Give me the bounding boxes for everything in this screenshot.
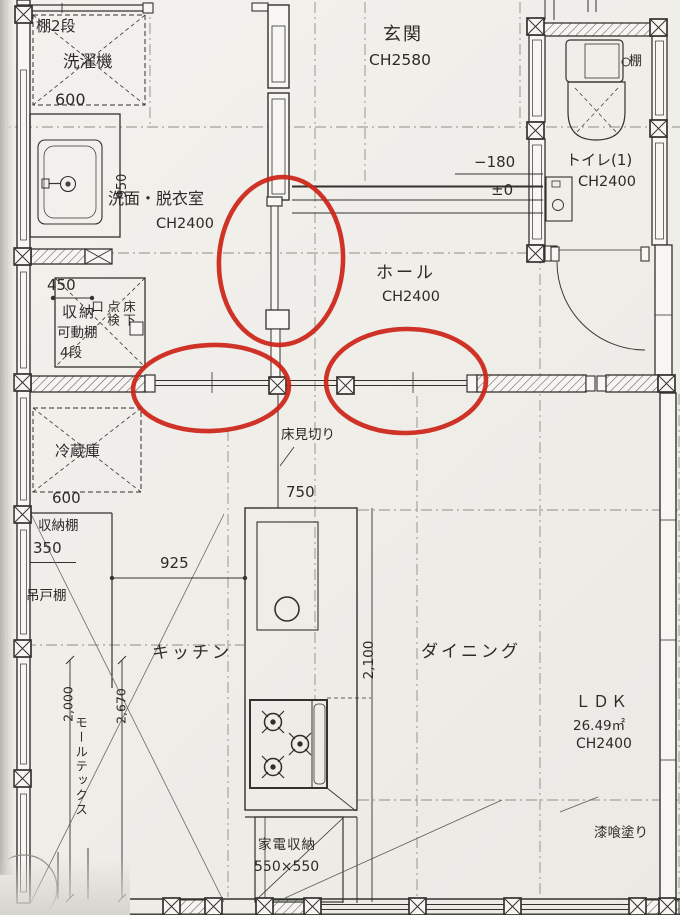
page-edge-shadow: [0, 0, 15, 875]
toilet-ceiling-height: CH2400: [578, 175, 636, 190]
dim-closet-depth: 450: [47, 278, 76, 294]
floor-divider-label: 床見切り: [281, 428, 335, 442]
toilet-shelf-label: 棚: [629, 55, 642, 69]
dim-vanity-depth: 950: [116, 174, 130, 199]
dim-fridge-width: 600: [52, 491, 81, 507]
floorplan-drawing: [0, 0, 680, 915]
dim-shelf-depth: 350: [33, 541, 62, 557]
page-curl-shadow: [0, 858, 130, 915]
entrance-level-label: −180: [474, 155, 515, 171]
appliance-storage-size: 550×550: [254, 860, 319, 875]
ldk-ceiling-height: CH2400: [576, 737, 632, 752]
shelf-two-tier-label: 棚2段: [36, 19, 76, 35]
ldk-name: ＬＤＫ: [575, 694, 629, 711]
floor-plan: 棚2段 洗濯機 600 洗面・脱衣室 CH2400 950 玄関 CH2580 …: [0, 0, 680, 915]
door-arcs: [557, 262, 645, 350]
toilet-name: トイレ(1): [566, 153, 632, 169]
entrance-name: 玄関: [383, 26, 423, 45]
entrance-ceiling-height: CH2580: [369, 52, 431, 68]
exterior-walls: [0, 0, 680, 915]
underfloor-hatch-label: 床下点検口: [88, 300, 136, 334]
dining-name: ダイニング: [421, 644, 521, 662]
hall-name: ホール: [376, 265, 436, 283]
sink-circle: [275, 597, 299, 621]
dim-counter-gap: 925: [160, 556, 189, 572]
dim-island-length: 2,100: [362, 641, 376, 680]
washing-machine-label: 洗濯機: [63, 53, 113, 70]
floor-level-label: ±0: [491, 183, 513, 199]
ldk-area: 26.49㎡: [573, 719, 625, 733]
dim-island-width: 750: [286, 485, 315, 501]
columns: [14, 6, 676, 915]
hanging-cupboard-label: 吊戸棚: [26, 589, 67, 603]
plaster-finish-label: 漆喰塗り: [594, 826, 648, 840]
appliance-storage-label: 家電収納: [258, 838, 316, 852]
vanity-basin: [30, 114, 120, 237]
grid-lines: [0, 2, 680, 914]
toilet-symbol: [566, 40, 630, 140]
washroom-ceiling-height: CH2400: [156, 217, 214, 232]
dim-washer-width: 600: [55, 92, 86, 109]
refrigerator-label: 冷蔵庫: [55, 444, 100, 460]
kitchen-name: キッチン: [152, 645, 232, 663]
interior-walls: [31, 3, 672, 508]
storage-shelf-label: 収納棚: [38, 519, 79, 533]
dim-kitchen-len-b: 2,670: [114, 688, 127, 724]
mortex-finish-label: モールテックス: [74, 716, 87, 866]
toilet-hand-basin: [546, 177, 572, 221]
stove-symbol: [250, 698, 371, 811]
hall-ceiling-height: CH2400: [382, 290, 440, 305]
kitchen-island: [245, 508, 357, 817]
four-tiers-label: 4段: [60, 346, 82, 360]
